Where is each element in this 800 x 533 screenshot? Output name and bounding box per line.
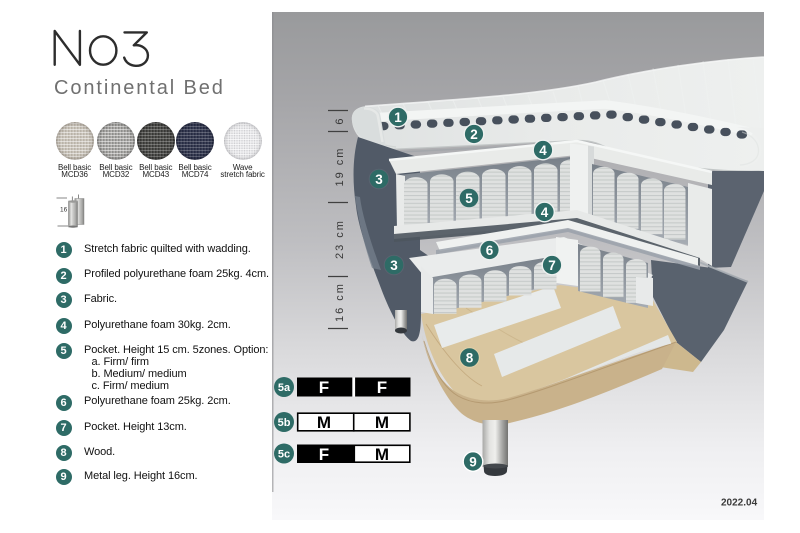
svg-text:3: 3: [375, 172, 383, 187]
svg-text:4: 4: [539, 143, 547, 158]
svg-text:F: F: [319, 378, 329, 397]
svg-text:3: 3: [390, 258, 398, 273]
svg-text:4: 4: [541, 205, 549, 220]
svg-text:19 cm: 19 cm: [334, 147, 346, 187]
svg-text:16 cm: 16 cm: [334, 282, 346, 322]
svg-text:M: M: [317, 413, 331, 432]
svg-text:2: 2: [470, 127, 478, 142]
svg-text:5: 5: [465, 191, 473, 206]
svg-text:5b: 5b: [278, 417, 291, 429]
svg-text:8: 8: [466, 350, 474, 365]
svg-text:6: 6: [334, 116, 346, 124]
svg-text:M: M: [375, 445, 389, 464]
svg-text:5c: 5c: [278, 449, 290, 461]
svg-text:16: 16: [60, 207, 68, 214]
svg-text:9: 9: [469, 454, 477, 469]
svg-text:2022.04: 2022.04: [721, 498, 758, 509]
svg-text:7: 7: [548, 258, 556, 273]
svg-text:1: 1: [394, 110, 402, 125]
svg-text:F: F: [319, 445, 329, 464]
svg-text:5a: 5a: [278, 382, 291, 394]
svg-text:6: 6: [486, 243, 494, 258]
svg-text:23 cm: 23 cm: [334, 219, 346, 259]
svg-text:M: M: [375, 413, 389, 432]
svg-text:F: F: [377, 378, 387, 397]
